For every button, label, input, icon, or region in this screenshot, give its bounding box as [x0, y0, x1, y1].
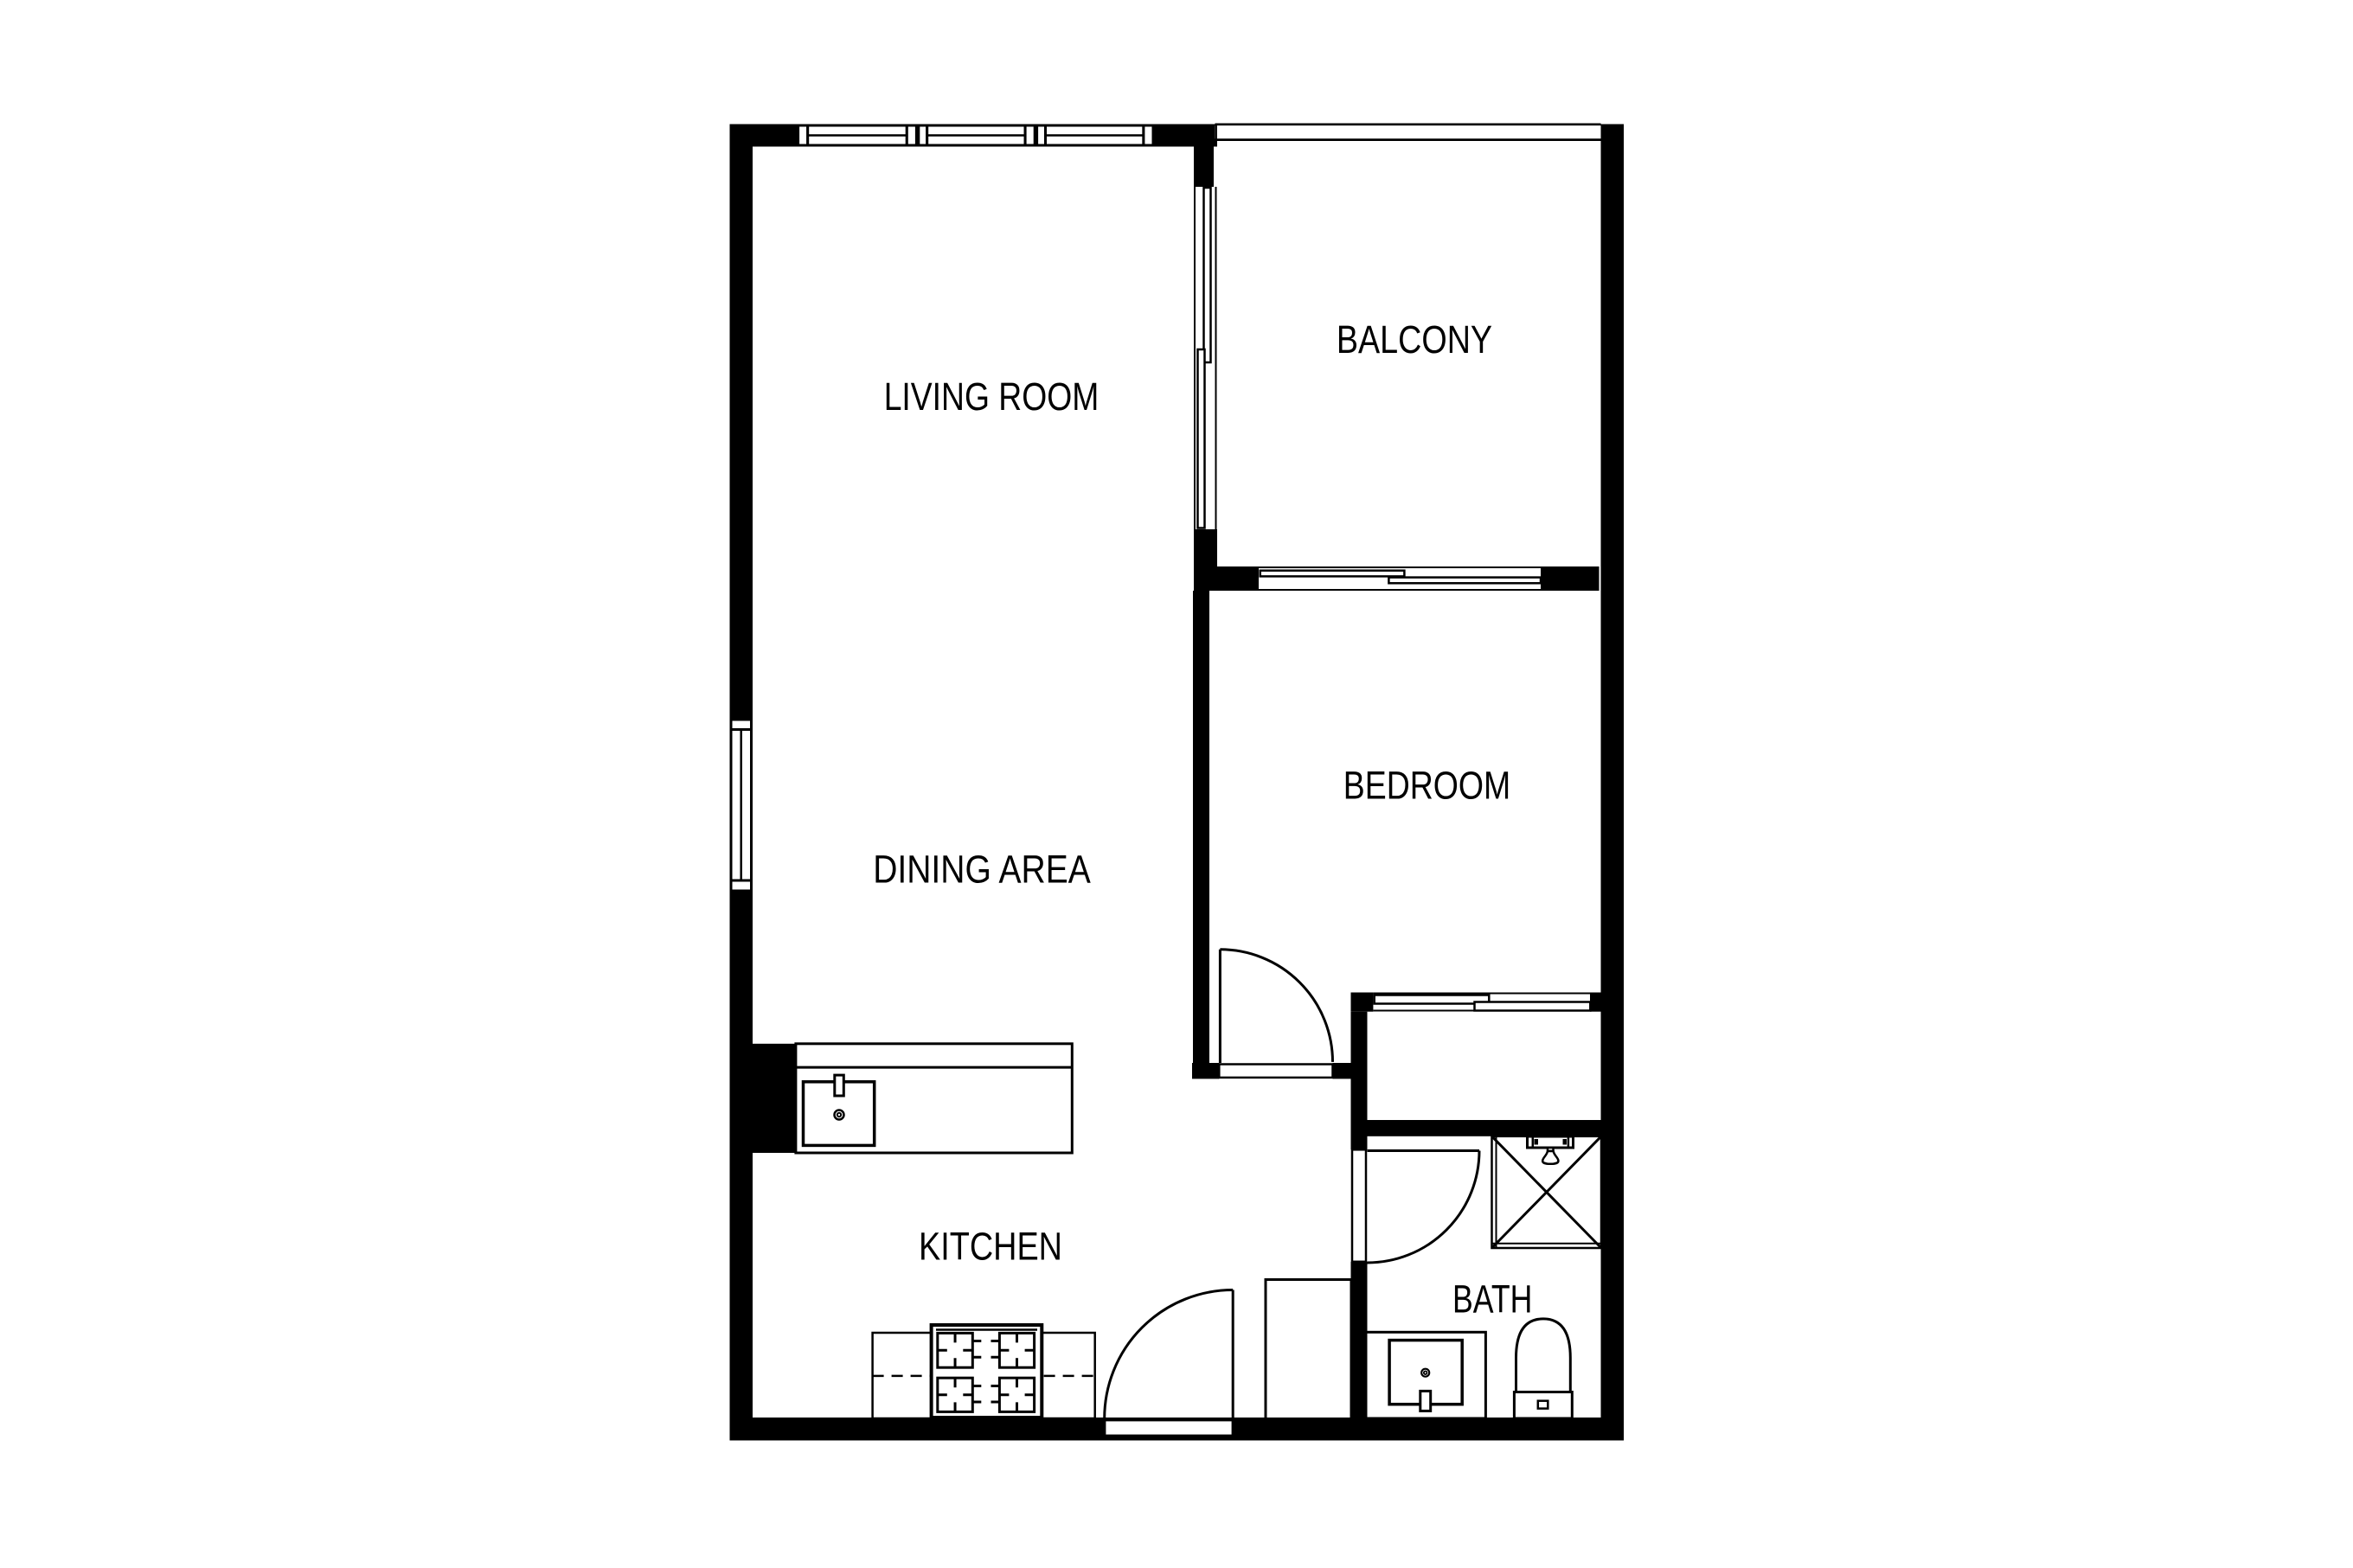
svg-text:DINING AREA: DINING AREA	[873, 848, 1091, 892]
svg-text:BEDROOM: BEDROOM	[1343, 764, 1510, 808]
svg-text:KITCHEN: KITCHEN	[919, 1225, 1062, 1269]
svg-text:BALCONY: BALCONY	[1337, 317, 1492, 362]
svg-text:BATH: BATH	[1452, 1277, 1532, 1322]
svg-text:LIVING ROOM: LIVING ROOM	[884, 374, 1100, 419]
